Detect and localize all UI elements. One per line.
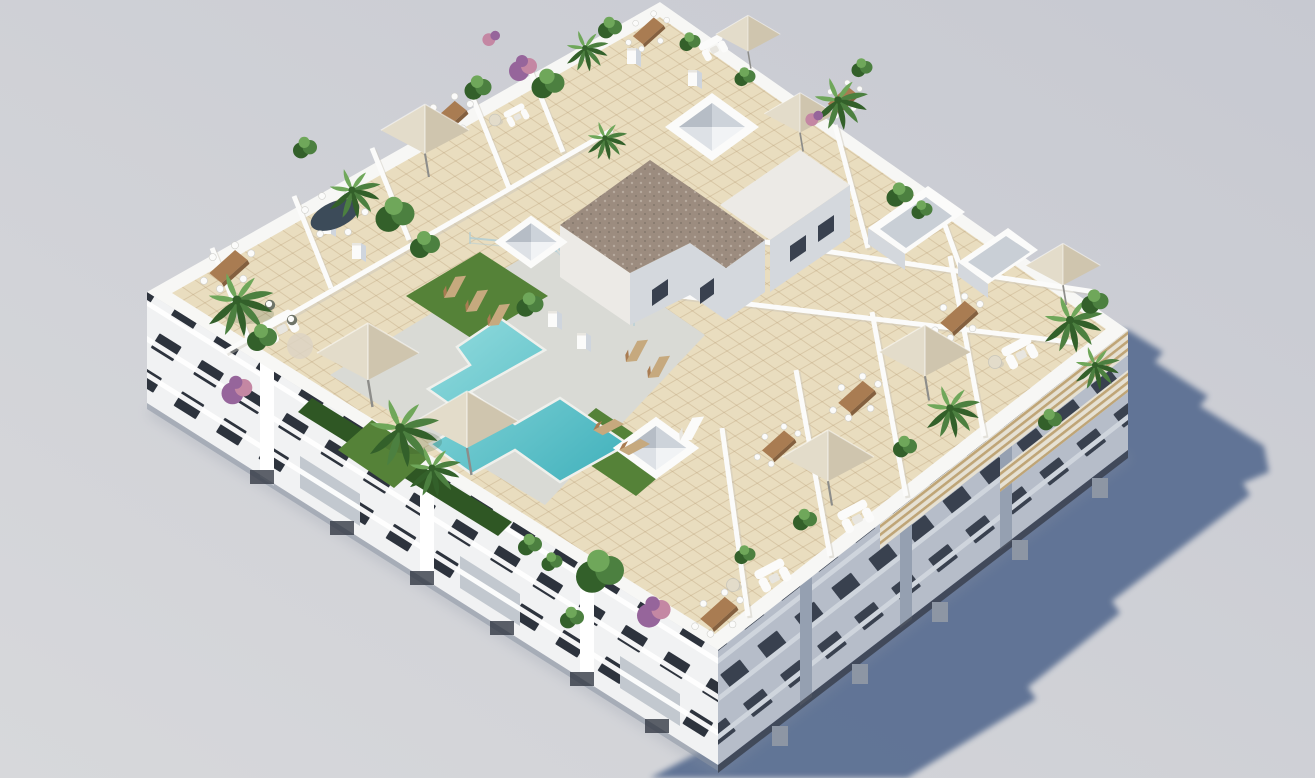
- wicker-chair: [287, 315, 297, 325]
- render-canvas: Aerial 3D rendering of a white residenti…: [0, 0, 1315, 778]
- architectural-render: Aerial 3D rendering of a white residenti…: [0, 0, 1315, 778]
- round-rug: [287, 333, 313, 359]
